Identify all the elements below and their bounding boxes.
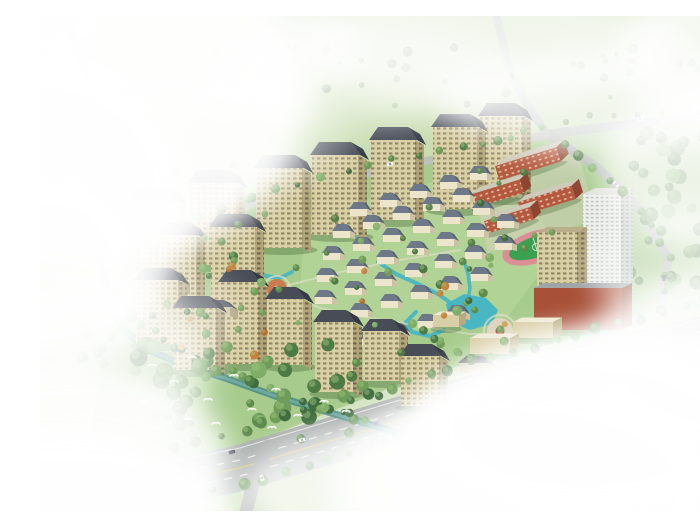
shop-building — [430, 312, 466, 334]
bird — [294, 415, 302, 416]
aerial-rendering-figure: Aerial rendering of a residential commun… — [40, 16, 700, 511]
bird — [272, 389, 280, 390]
mist-cloud — [100, 266, 240, 366]
bird — [204, 399, 212, 400]
aerial-rendering-canvas — [40, 16, 700, 511]
mist-cloud — [150, 86, 350, 186]
bird — [342, 411, 350, 412]
bird — [320, 401, 328, 402]
bird — [230, 375, 238, 376]
bird — [248, 409, 256, 410]
bird — [268, 427, 276, 428]
